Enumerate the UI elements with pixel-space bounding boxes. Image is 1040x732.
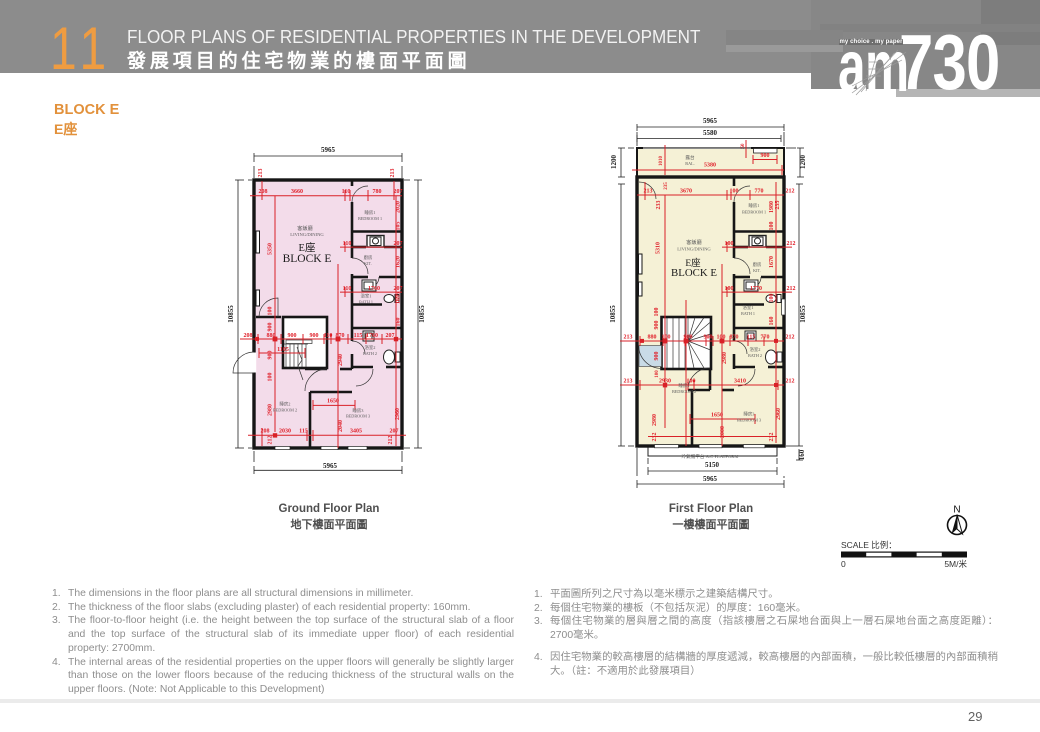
svg-text:1670: 1670 — [769, 256, 775, 268]
svg-text:BEDROOM 2: BEDROOM 2 — [273, 408, 297, 413]
svg-text:5380: 5380 — [704, 163, 716, 169]
svg-text:212: 212 — [786, 189, 795, 195]
svg-text:780: 780 — [373, 189, 382, 195]
svg-text:213: 213 — [390, 169, 396, 178]
svg-text:110: 110 — [343, 241, 352, 247]
svg-text:10855: 10855 — [227, 305, 235, 323]
svg-text:浴室2: 浴室2 — [365, 344, 376, 351]
svg-text:BAL.: BAL. — [685, 161, 694, 166]
svg-text:100: 100 — [769, 294, 775, 303]
svg-text:207: 207 — [386, 333, 395, 339]
svg-text:1200: 1200 — [799, 155, 807, 170]
svg-text:1770: 1770 — [750, 286, 762, 292]
svg-text:50: 50 — [741, 143, 746, 149]
svg-text:3670: 3670 — [680, 189, 692, 195]
svg-text:睡房2: 睡房2 — [679, 382, 690, 389]
svg-text:BEDROOM 1: BEDROOM 1 — [742, 210, 766, 215]
svg-text:露台: 露台 — [685, 154, 695, 161]
svg-text:213: 213 — [644, 189, 653, 195]
svg-text:2030: 2030 — [279, 429, 291, 435]
svg-text:1650: 1650 — [711, 413, 723, 419]
svg-text:2960: 2960 — [776, 408, 782, 420]
svg-text:客飯廳: 客飯廳 — [686, 238, 702, 246]
svg-text:160: 160 — [396, 318, 402, 327]
svg-text:5150: 5150 — [705, 461, 720, 469]
svg-text:1010: 1010 — [659, 156, 664, 167]
svg-text:207: 207 — [394, 189, 403, 195]
svg-text:1105: 1105 — [277, 347, 289, 353]
svg-text:2980: 2980 — [652, 414, 658, 426]
svg-text:浴室1: 浴室1 — [743, 304, 754, 311]
svg-text:2020: 2020 — [396, 201, 402, 213]
svg-text:212: 212 — [787, 241, 796, 247]
svg-text:睡房1: 睡房1 — [365, 209, 376, 216]
svg-text:880: 880 — [648, 335, 657, 341]
svg-text:N: N — [953, 505, 960, 516]
svg-text:115: 115 — [354, 333, 363, 339]
svg-text:KIT.: KIT. — [364, 261, 372, 266]
svg-text:5350: 5350 — [268, 243, 274, 255]
svg-text:睡房1: 睡房1 — [749, 202, 760, 209]
svg-text:900: 900 — [288, 333, 297, 339]
svg-text:1200: 1200 — [610, 155, 618, 170]
svg-text:212: 212 — [786, 379, 795, 385]
svg-text:212: 212 — [268, 436, 274, 445]
svg-text:100: 100 — [769, 222, 775, 231]
svg-text:5580: 5580 — [703, 129, 718, 137]
svg-text:2940: 2940 — [338, 354, 344, 366]
svg-text:BEDROOM 1: BEDROOM 1 — [358, 216, 382, 221]
svg-text:廚房: 廚房 — [753, 261, 762, 268]
svg-text:212: 212 — [787, 286, 796, 292]
svg-text:睡房2: 睡房2 — [280, 401, 291, 408]
svg-text:233: 233 — [656, 201, 662, 210]
svg-text:KIT.: KIT. — [753, 268, 761, 273]
svg-text:廚房: 廚房 — [364, 254, 373, 261]
svg-text:900: 900 — [268, 351, 274, 360]
svg-text:212: 212 — [786, 335, 795, 341]
svg-text:235: 235 — [664, 182, 669, 190]
svg-text:1620: 1620 — [396, 256, 402, 268]
svg-text:BLOCK E: BLOCK E — [671, 267, 717, 279]
svg-text:160: 160 — [798, 449, 806, 460]
svg-text:客飯廳: 客飯廳 — [297, 224, 313, 232]
svg-text:207: 207 — [390, 429, 399, 435]
svg-text:睡房3: 睡房3 — [744, 411, 756, 418]
svg-text:770: 770 — [761, 335, 770, 341]
svg-text:870: 870 — [730, 335, 739, 341]
svg-text:0: 0 — [841, 559, 846, 569]
svg-text:BEDROOM 3: BEDROOM 3 — [346, 414, 370, 419]
svg-text:900: 900 — [654, 352, 660, 361]
svg-text:10855: 10855 — [609, 305, 617, 323]
svg-text:5965: 5965 — [321, 146, 336, 154]
svg-text:213: 213 — [624, 335, 633, 341]
svg-text:1980: 1980 — [769, 201, 775, 213]
svg-text:10855: 10855 — [418, 305, 426, 323]
svg-text:1760: 1760 — [368, 286, 380, 292]
svg-text:浴室1: 浴室1 — [361, 293, 372, 300]
svg-text:BATH 2: BATH 2 — [363, 351, 377, 356]
svg-text:100: 100 — [725, 241, 734, 247]
svg-text:212: 212 — [388, 436, 394, 445]
svg-text:213: 213 — [258, 169, 264, 178]
svg-text:208: 208 — [244, 333, 253, 339]
svg-text:207: 207 — [394, 286, 403, 292]
svg-text:213: 213 — [624, 379, 633, 385]
svg-text:900: 900 — [654, 321, 660, 330]
svg-text:5310: 5310 — [656, 242, 662, 254]
svg-text:1695: 1695 — [396, 292, 402, 304]
svg-text:900: 900 — [761, 153, 770, 159]
svg-text:110: 110 — [343, 286, 352, 292]
svg-text:100: 100 — [268, 307, 274, 316]
svg-text:5M/米: 5M/米 — [944, 559, 967, 569]
svg-text:浴室2: 浴室2 — [750, 346, 761, 353]
svg-text:770: 770 — [755, 189, 764, 195]
svg-text:1650: 1650 — [327, 398, 339, 404]
svg-text:2980: 2980 — [722, 352, 728, 364]
svg-text:115: 115 — [299, 429, 308, 435]
svg-text:3660: 3660 — [291, 189, 303, 195]
svg-text:110: 110 — [342, 189, 351, 195]
svg-text:5965: 5965 — [703, 475, 718, 483]
svg-text:105: 105 — [396, 222, 402, 231]
svg-text:2960: 2960 — [395, 408, 401, 420]
svg-text:232: 232 — [652, 433, 658, 442]
svg-text:LIVING/DINING: LIVING/DINING — [677, 247, 711, 252]
svg-text:3410: 3410 — [734, 379, 746, 385]
svg-text:100: 100 — [730, 189, 739, 195]
svg-text:BEDROOM 3: BEDROOM 3 — [737, 418, 761, 423]
svg-text:SCALE 比例：: SCALE 比例： — [841, 540, 897, 550]
svg-text:115: 115 — [747, 335, 756, 341]
svg-text:110: 110 — [324, 333, 333, 339]
svg-text:BATH 1: BATH 1 — [359, 300, 373, 305]
svg-text:5965: 5965 — [323, 462, 338, 470]
svg-text:5965: 5965 — [703, 117, 718, 125]
svg-text:LIVING/DINING: LIVING/DINING — [290, 232, 324, 237]
svg-text:100: 100 — [268, 373, 274, 382]
svg-text:100: 100 — [655, 370, 660, 378]
svg-text:100: 100 — [654, 308, 660, 317]
svg-text:1760: 1760 — [366, 333, 378, 339]
svg-text:3405: 3405 — [350, 429, 362, 435]
svg-text:BLOCK E: BLOCK E — [283, 253, 332, 265]
svg-text:100: 100 — [725, 286, 734, 292]
svg-text:2040: 2040 — [338, 420, 344, 432]
svg-text:900: 900 — [268, 323, 274, 332]
svg-text:900: 900 — [704, 335, 713, 341]
svg-text:160: 160 — [769, 317, 775, 326]
svg-text:207: 207 — [394, 241, 403, 247]
svg-text:2000: 2000 — [720, 426, 726, 438]
svg-text:BATH 1: BATH 1 — [741, 311, 755, 316]
svg-text:冷氣機平台 A/C PLATFORM: 冷氣機平台 A/C PLATFORM — [682, 453, 739, 460]
svg-text:BEDROOM 2: BEDROOM 2 — [672, 389, 696, 394]
svg-text:208: 208 — [259, 189, 268, 195]
svg-text:235: 235 — [775, 201, 781, 210]
svg-text:208: 208 — [261, 429, 270, 435]
svg-text:10855: 10855 — [799, 305, 807, 323]
svg-text:900: 900 — [310, 333, 319, 339]
svg-text:232: 232 — [769, 433, 775, 442]
svg-text:BATH 2: BATH 2 — [748, 353, 762, 358]
